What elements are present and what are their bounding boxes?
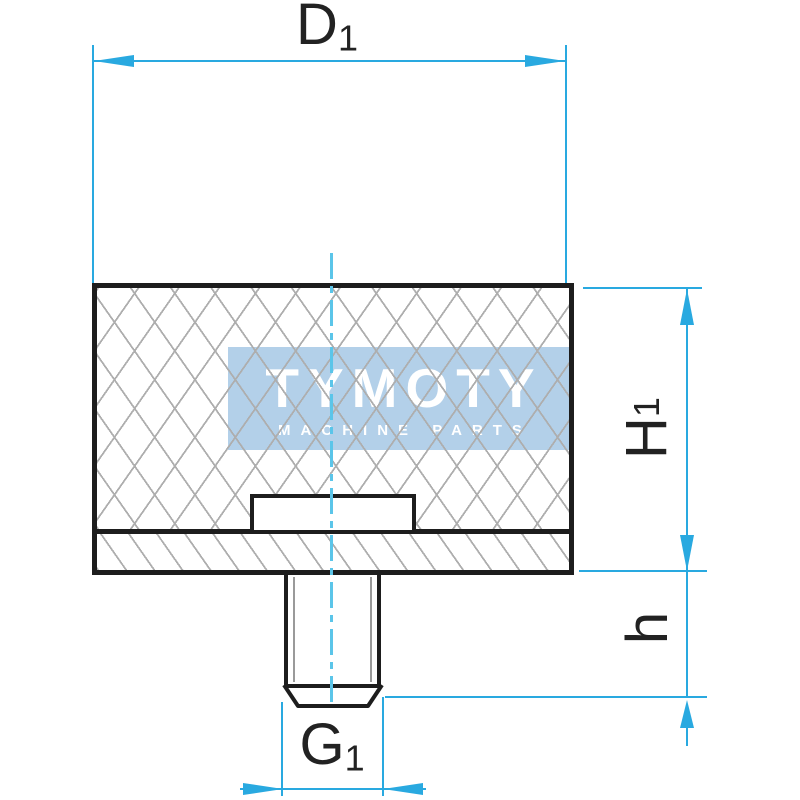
h1-dimension-label: H1 (617, 363, 677, 493)
h1-dimension-line (686, 288, 688, 571)
g1-arrow-inward-left-icon (243, 783, 283, 795)
h1-arrow-down-icon (680, 535, 694, 571)
thread-root-line-left (293, 577, 295, 682)
base-plate-hatch (92, 529, 574, 575)
nut-pocket (250, 494, 416, 534)
d1-dimension-label: D1 (267, 0, 387, 56)
h-extension-line-bottom (385, 696, 707, 698)
centerline (330, 253, 333, 703)
h-dimension-label: h (620, 578, 676, 678)
d1-extension-line-right (565, 45, 567, 283)
h-arrow-up-icon (680, 700, 694, 728)
thread-root-line-right (370, 577, 372, 682)
h1-arrow-up-icon (680, 289, 694, 325)
h-arrow-tail (686, 726, 688, 746)
d1-extension-line-left (92, 45, 94, 283)
d1-dimension-line (94, 60, 565, 62)
technical-drawing-canvas: TYMOTY MACHINE PARTS D1 H1 h G1 (0, 0, 800, 800)
h-dimension-line (686, 571, 688, 697)
g1-arrow-inward-right-icon (383, 783, 423, 795)
g1-dimension-label: G1 (272, 716, 392, 776)
d1-arrow-right-icon (525, 55, 565, 67)
d1-arrow-left-icon (94, 55, 134, 67)
